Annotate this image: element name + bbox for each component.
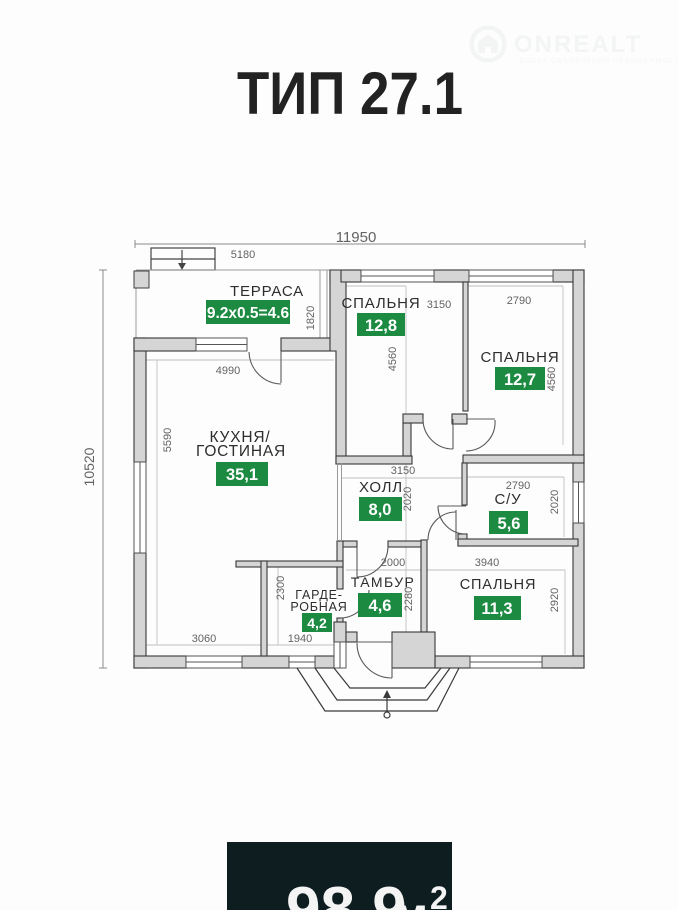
svg-text:СПАЛЬНЯ: СПАЛЬНЯ [342, 295, 421, 312]
svg-text:2: 2 [430, 880, 448, 910]
svg-text:98.9: 98.9 [286, 875, 407, 910]
svg-text:ХОЛЛ: ХОЛЛ [359, 479, 403, 496]
svg-text:10520: 10520 [81, 447, 97, 486]
svg-text:4,6: 4,6 [369, 597, 392, 615]
svg-text:РОБНАЯ: РОБНАЯ [290, 600, 347, 614]
svg-text:1820: 1820 [305, 306, 317, 330]
svg-text:ТЕРРАСА: ТЕРРАСА [230, 283, 304, 300]
svg-text:2300: 2300 [275, 576, 287, 600]
svg-text:ГОСТИНАЯ: ГОСТИНАЯ [196, 443, 286, 460]
svg-text:2020: 2020 [402, 487, 414, 511]
svg-text:ТИП 27.1: ТИП 27.1 [237, 60, 463, 127]
svg-text:4560: 4560 [387, 347, 399, 371]
svg-text:2920: 2920 [549, 588, 561, 612]
svg-text:35,1: 35,1 [226, 466, 258, 484]
svg-text:2790: 2790 [507, 295, 531, 307]
svg-text:5590: 5590 [162, 428, 174, 452]
svg-text:12,7: 12,7 [504, 371, 536, 389]
svg-text:11950: 11950 [336, 229, 377, 246]
svg-text:2280: 2280 [403, 587, 415, 611]
svg-text:1940: 1940 [288, 633, 312, 645]
svg-text:5,6: 5,6 [498, 515, 521, 533]
svg-text:3150: 3150 [391, 465, 415, 477]
svg-text:3060: 3060 [192, 633, 216, 645]
svg-text:м: м [394, 888, 428, 910]
svg-text:5180: 5180 [231, 249, 255, 261]
svg-text:3940: 3940 [475, 557, 499, 569]
svg-text:2000: 2000 [381, 557, 405, 569]
svg-text:СПАЛЬНЯ: СПАЛЬНЯ [481, 349, 560, 366]
svg-text:3150: 3150 [427, 299, 451, 311]
svg-text:12,8: 12,8 [365, 317, 397, 335]
svg-text:ТАМБУР: ТАМБУР [351, 574, 416, 590]
svg-text:11,3: 11,3 [481, 600, 512, 618]
svg-text:4560: 4560 [546, 367, 558, 391]
svg-text:8,0: 8,0 [369, 501, 392, 519]
svg-text:ONREALT: ONREALT [514, 31, 642, 58]
svg-text:ДОСКА ОБЪЯВЛЕНИЙ НЕДВИЖИМОСТИ: ДОСКА ОБЪЯВЛЕНИЙ НЕДВИЖИМОСТИ [519, 56, 678, 65]
svg-text:9.2x0.5=4.6: 9.2x0.5=4.6 [207, 305, 290, 322]
svg-text:4,2: 4,2 [307, 615, 327, 631]
svg-text:СПАЛЬНЯ: СПАЛЬНЯ [460, 577, 536, 593]
svg-text:С/У: С/У [495, 491, 522, 508]
svg-text:2020: 2020 [549, 490, 561, 514]
svg-text:4990: 4990 [216, 365, 240, 377]
